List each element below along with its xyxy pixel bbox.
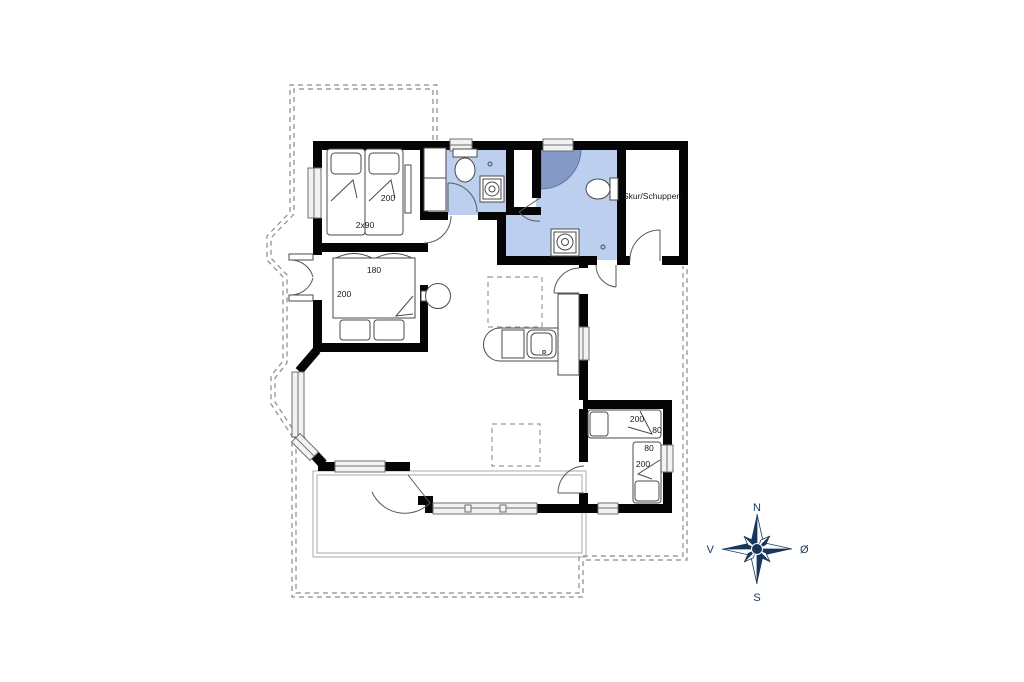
door-bedroom3 <box>558 466 584 493</box>
stove-icon <box>502 330 524 358</box>
dim-bed2-width: 180 <box>367 265 381 275</box>
room-bedroom-1: 200 2x90 <box>327 149 411 235</box>
room-bedroom-2: 180 200 <box>333 254 415 341</box>
toilet-icon <box>610 178 618 200</box>
floor-plan-page: 200 2x90 180 200 Sk <box>0 0 1024 682</box>
dim-bed3a-width: 80 <box>652 425 662 435</box>
dim-bed3b-width: 80 <box>644 443 654 453</box>
bench <box>340 320 370 340</box>
door-shed <box>630 230 660 261</box>
french-door-leaf <box>289 254 313 260</box>
pillow <box>369 153 399 174</box>
skylight-dashed <box>488 277 542 327</box>
dim-bed2-length: 200 <box>337 289 351 299</box>
dim-bed3a-length: 200 <box>630 414 644 424</box>
toilet-icon <box>455 158 475 182</box>
compass-south-label: S <box>753 592 760 604</box>
room-shed: Skur/Schuppen <box>623 191 681 201</box>
compass-rose: N S V Ø <box>707 502 809 604</box>
kitchen-counter <box>558 294 579 375</box>
cabinet <box>424 178 446 211</box>
shed-label: Skur/Schuppen <box>623 191 681 201</box>
pillow <box>590 412 608 436</box>
cabinet <box>424 148 446 178</box>
dim-bed1-length: 200 <box>381 193 395 203</box>
toilet-icon <box>586 179 610 199</box>
compass-west-label: V <box>707 544 715 556</box>
compass-east-label: Ø <box>800 544 809 556</box>
door-bedroom1 <box>424 216 451 243</box>
dim-bed1-size: 2x90 <box>356 220 375 230</box>
pillow <box>331 153 361 174</box>
toilet-icon <box>453 149 477 157</box>
french-door-leaf <box>289 295 313 301</box>
skylight-dashed <box>492 424 540 466</box>
door-bathroom2-exterior <box>596 265 616 287</box>
door-living-east <box>554 268 579 293</box>
floor-plan-svg: 200 2x90 180 200 Sk <box>0 0 1024 682</box>
compass-north-label: N <box>753 502 761 514</box>
kitchen <box>484 294 579 375</box>
washing-machine-icon <box>551 229 579 256</box>
bench <box>374 320 404 340</box>
pillow <box>635 481 659 501</box>
dim-bed3b-length: 200 <box>636 459 650 469</box>
wardrobe <box>405 165 411 213</box>
room-bedroom-3: 200 80 80 200 <box>588 410 662 503</box>
washing-machine-icon <box>480 176 504 202</box>
